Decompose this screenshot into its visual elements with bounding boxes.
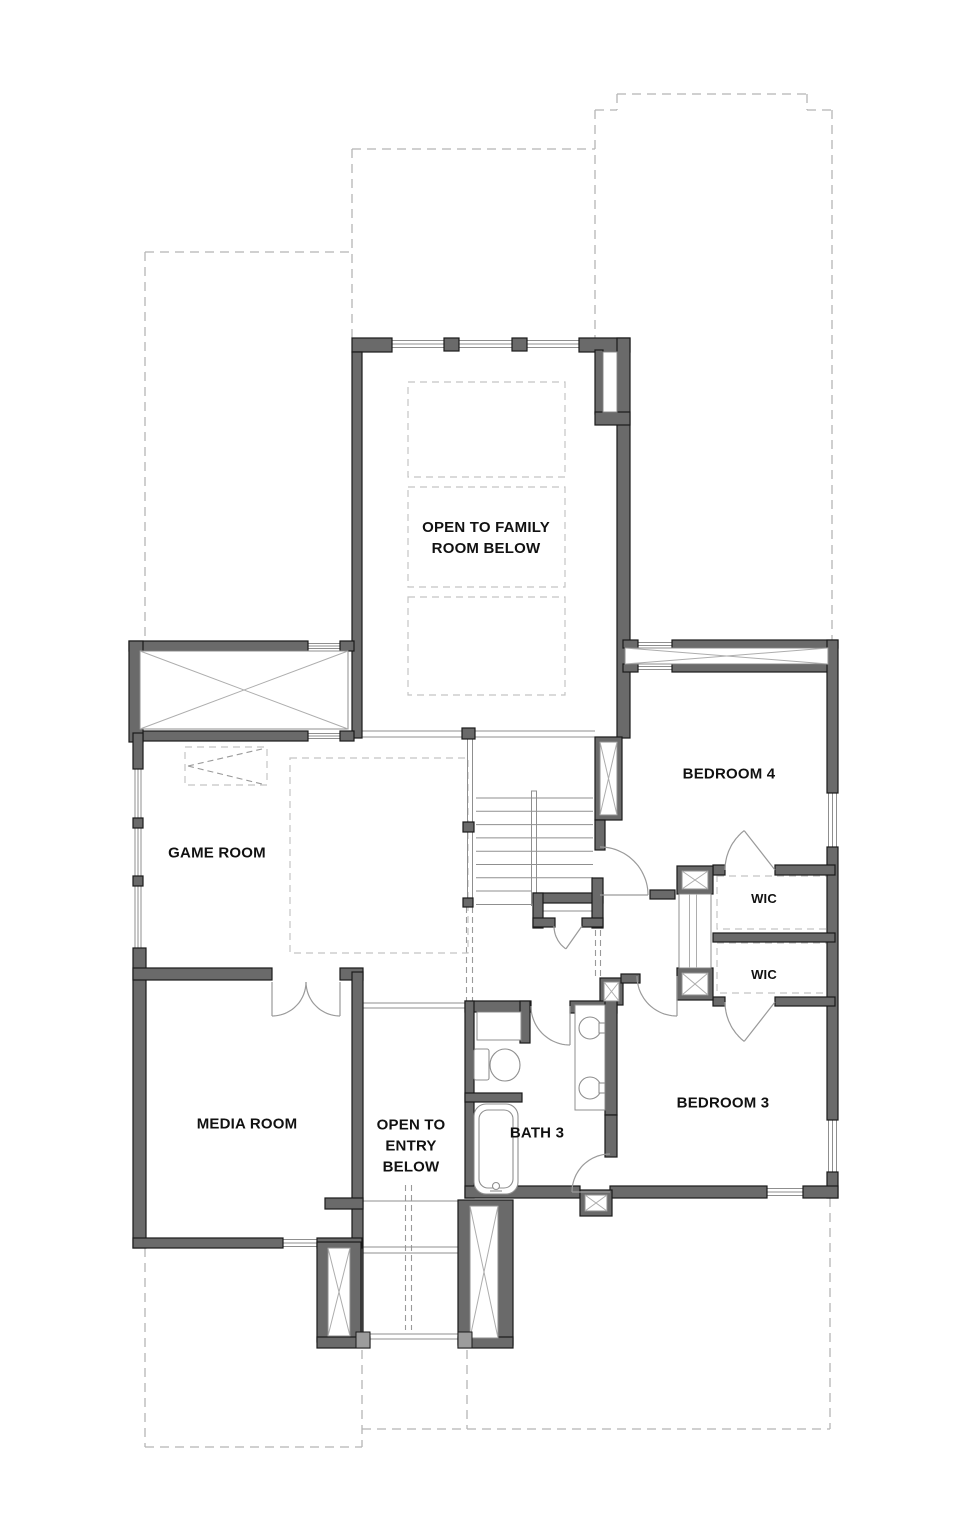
door-leaf	[566, 926, 582, 949]
door-swing-arc	[272, 982, 306, 1016]
bath-3-label: BATH 3	[510, 1123, 564, 1144]
bathtub-fixture	[474, 1104, 518, 1194]
door-leaf	[744, 1002, 775, 1041]
game-room-label: GAME ROOM	[168, 843, 266, 864]
open-to-entry-label: OPEN TO ENTRY BELOW	[377, 1115, 446, 1178]
door-swing-arc	[725, 831, 744, 870]
media-room-label: MEDIA ROOM	[197, 1114, 298, 1135]
ceiling-slope-marker	[188, 749, 262, 784]
toilet-fixture	[474, 1049, 520, 1081]
door-swing-arc	[725, 1002, 744, 1041]
bedroom-4-label: BEDROOM 4	[683, 764, 776, 785]
bedroom-3-label: BEDROOM 3	[677, 1093, 770, 1114]
door-swing-arc	[306, 982, 340, 1016]
wic-lower-label: WIC	[751, 966, 777, 984]
open-to-family-room-label: OPEN TO FAMILY ROOM BELOW	[422, 517, 550, 559]
door-swing-arc	[531, 1006, 570, 1045]
floor-plan-canvas	[0, 0, 954, 1536]
door-swing-arc	[637, 976, 677, 1016]
door-swing-arc	[554, 926, 566, 949]
floor-plan: OPEN TO FAMILY ROOM BELOW GAME ROOM BEDR…	[0, 0, 954, 1536]
wic-upper-label: WIC	[751, 890, 777, 908]
door-swing-arc	[600, 847, 648, 895]
door-leaf	[744, 831, 775, 870]
